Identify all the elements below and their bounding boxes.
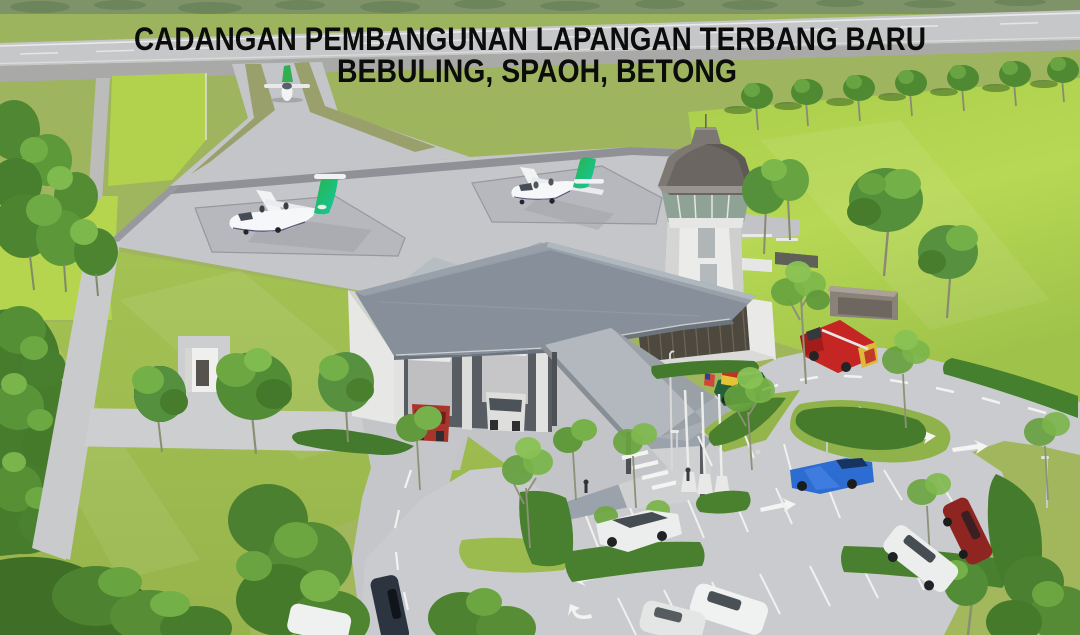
svg-text:BEBULING, SPAOH, BETONG: BEBULING, SPAOH, BETONG [337,53,737,89]
svg-text:CADANGAN PEMBANGUNAN LAPANGAN: CADANGAN PEMBANGUNAN LAPANGAN TERBANG BA… [134,21,926,57]
